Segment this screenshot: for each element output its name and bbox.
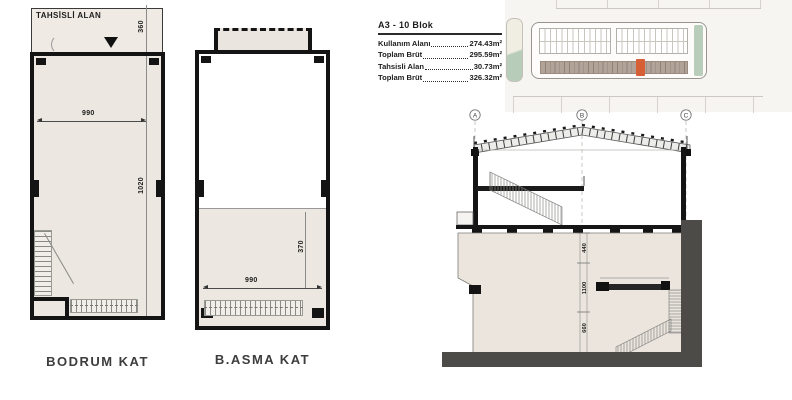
info-label: Tahsisli Alan bbox=[378, 61, 424, 72]
slab-end-block bbox=[661, 281, 670, 290]
wall-corner-block bbox=[149, 58, 159, 65]
dimension-line-1020 bbox=[146, 56, 147, 316]
wall-corner-block bbox=[36, 58, 46, 65]
basement-column-block bbox=[469, 285, 481, 294]
dimension-line-990 bbox=[37, 121, 146, 122]
wall-corner-block bbox=[201, 56, 211, 63]
block-title: A3 - 10 Blok bbox=[378, 20, 502, 35]
column-block bbox=[156, 180, 165, 197]
dimension-440: 440 bbox=[582, 243, 588, 253]
entrance-arrow-icon bbox=[104, 37, 118, 48]
dimension-arrow bbox=[203, 285, 208, 289]
info-label: Kullanım Alanı bbox=[378, 38, 430, 49]
highlighted-unit bbox=[636, 59, 645, 76]
dot-leader bbox=[425, 69, 473, 70]
info-row: Toplam Brüt 295.59m² bbox=[378, 49, 502, 60]
site-main-block bbox=[531, 22, 707, 79]
unit-grid-right bbox=[616, 28, 688, 54]
stair-centerline bbox=[204, 307, 303, 308]
grid-label-c: C bbox=[684, 112, 689, 119]
slab-end-block bbox=[596, 282, 609, 291]
info-row: Kullanım Alanı 274.43m² bbox=[378, 38, 502, 49]
dimension-370: 370 bbox=[298, 240, 305, 253]
stair-centerline bbox=[70, 305, 138, 306]
unit-row-brown bbox=[540, 61, 688, 74]
wall-corner-block bbox=[312, 308, 324, 318]
stairs-mezzanine bbox=[204, 300, 303, 316]
dot-leader bbox=[431, 46, 468, 47]
column-block bbox=[30, 180, 39, 197]
stair-flight bbox=[490, 172, 562, 225]
stairs-bottom bbox=[70, 299, 138, 313]
site-green-area-left bbox=[506, 18, 523, 82]
exterior-step bbox=[457, 212, 473, 225]
dimension-line-370 bbox=[305, 212, 306, 288]
grid-bubbles: A B C bbox=[470, 110, 691, 120]
bodrum-plan-title: BODRUM KAT bbox=[30, 354, 165, 369]
info-value: 295.59m² bbox=[469, 49, 502, 60]
partition-wall bbox=[65, 297, 69, 317]
green-strip bbox=[694, 25, 703, 76]
grid-label-b: B bbox=[580, 112, 584, 119]
dimension-990: 990 bbox=[245, 277, 258, 284]
dimension-arrow bbox=[317, 285, 322, 289]
column-block bbox=[195, 180, 204, 197]
dimension-990: 990 bbox=[82, 110, 95, 117]
dot-leader bbox=[423, 58, 468, 59]
building-section: A B C bbox=[440, 100, 740, 392]
dimension-line-990 bbox=[203, 288, 322, 289]
dimension-arrow bbox=[37, 118, 42, 122]
info-row: Tahsisli Alan 30.73m² bbox=[378, 61, 502, 72]
asma-plan-title: B.ASMA KAT bbox=[195, 352, 330, 367]
info-row: Toplam Brüt 326.32m² bbox=[378, 72, 502, 83]
retaining-wall bbox=[681, 220, 702, 356]
area-info-panel: A3 - 10 Blok Kullanım Alanı 274.43m² Top… bbox=[378, 20, 502, 84]
dimension-1100: 1100 bbox=[582, 282, 588, 295]
base-slab bbox=[442, 352, 702, 367]
unit-grid-left bbox=[539, 28, 611, 54]
info-value: 326.32m² bbox=[469, 72, 502, 83]
dimension-1020: 1020 bbox=[138, 177, 145, 194]
partition-wall bbox=[33, 297, 69, 301]
info-label: Toplam Brüt bbox=[378, 49, 422, 60]
wall-corner-block bbox=[314, 56, 324, 63]
roof-truss bbox=[471, 125, 691, 156]
dimension-360: 360 bbox=[138, 20, 145, 33]
dimension-line-360 bbox=[146, 5, 147, 53]
adjacent-block-upper bbox=[556, 0, 761, 9]
info-label: Toplam Brüt bbox=[378, 72, 422, 83]
drawing-sheet: TAHSİSLİ ALAN 360 990 1020 BODRUM KAT 99… bbox=[0, 0, 792, 400]
column-block bbox=[321, 180, 330, 197]
info-value: 274.43m² bbox=[469, 38, 502, 49]
right-wall bbox=[681, 147, 686, 225]
info-value: 30.73m² bbox=[474, 61, 502, 72]
mezzanine-slab-stairs bbox=[476, 172, 584, 225]
allocated-area-label: TAHSİSLİ ALAN bbox=[36, 11, 101, 20]
site-key-plan bbox=[505, 0, 792, 112]
dot-leader bbox=[423, 81, 468, 82]
grid-label-a: A bbox=[473, 112, 478, 119]
dimension-660: 660 bbox=[582, 323, 588, 333]
